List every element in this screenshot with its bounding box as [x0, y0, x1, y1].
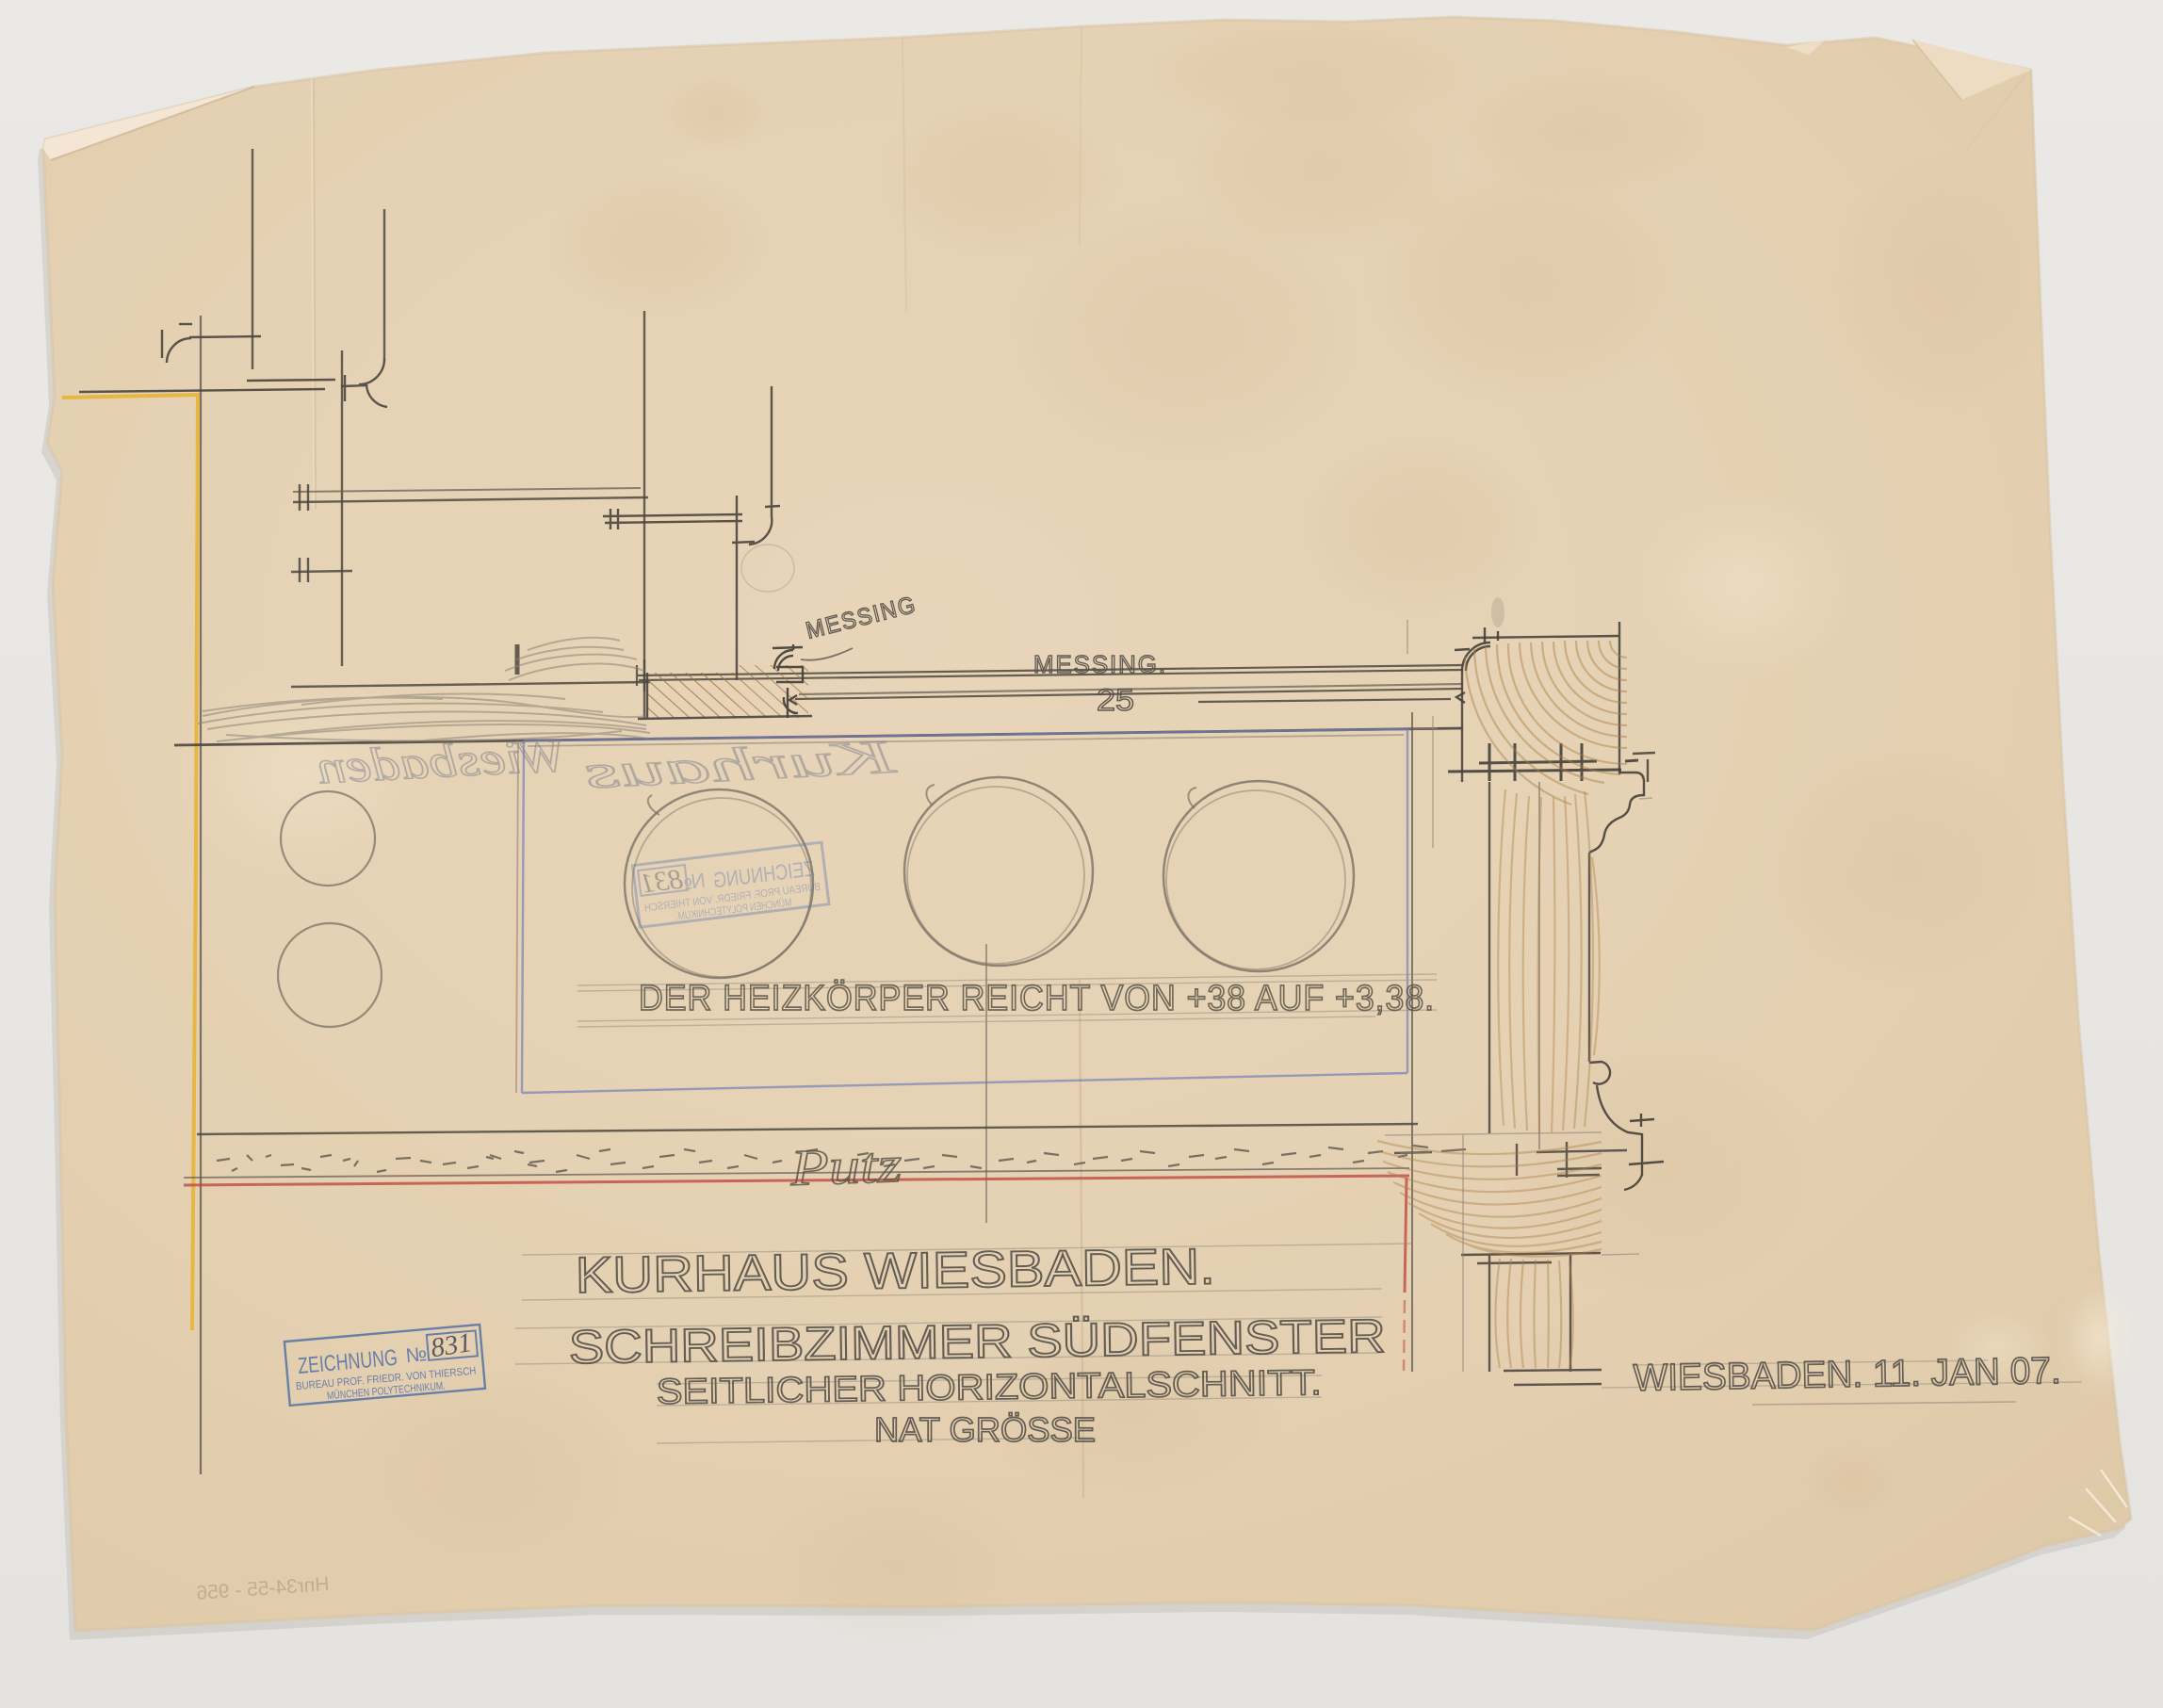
svg-text:DER HEIZKÖRPER REICHT VON +38: DER HEIZKÖRPER REICHT VON +38 AUF +3,38.	[639, 979, 1435, 1018]
svg-text:MESSING.: MESSING.	[1033, 650, 1167, 678]
svg-text:№: №	[405, 1343, 428, 1367]
svg-text:Putz: Putz	[789, 1136, 903, 1196]
svg-text:25: 25	[1097, 683, 1134, 717]
svg-text:831: 831	[639, 864, 685, 900]
svg-text:NAT GRÖSSE: NAT GRÖSSE	[874, 1410, 1096, 1449]
svg-text:KURHAUS WIESBADEN.: KURHAUS WIESBADEN.	[575, 1239, 1215, 1304]
svg-text:831: 831	[429, 1327, 474, 1363]
svg-text:WIESBADEN. 11. JAN 07.: WIESBADEN. 11. JAN 07.	[1633, 1350, 2061, 1399]
